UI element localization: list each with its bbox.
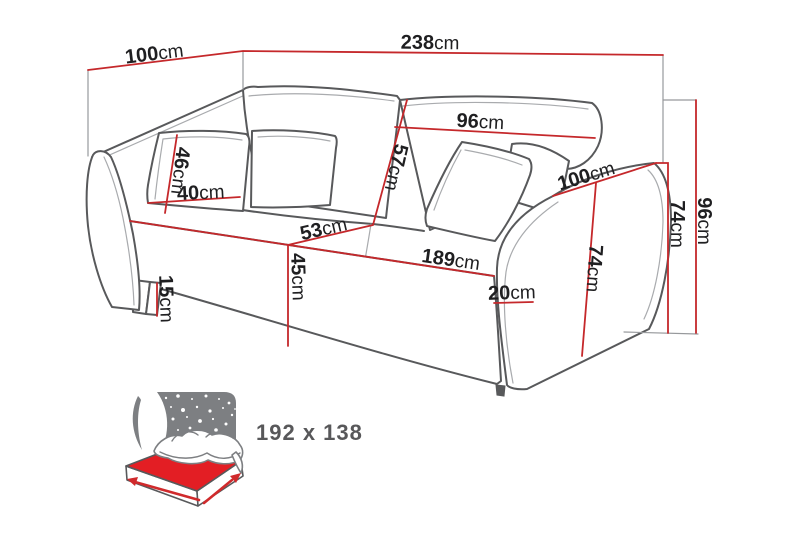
label-back-cushion-width-value: 96 — [456, 110, 479, 133]
label-armrest-front-width: 20cm — [488, 281, 536, 305]
label-total-width: 238cm — [401, 32, 460, 55]
diagram-canvas: 100cm 238cm 96cm 57cm 46cm 40cm 53cm 189… — [0, 0, 800, 533]
pillow-back-left — [251, 130, 337, 207]
label-total-height-value: 96 — [693, 197, 715, 219]
label-total-height-unit: cm — [693, 219, 714, 244]
front-leg-right — [496, 385, 505, 396]
label-armrest-height-side-value: 74 — [666, 200, 688, 223]
label-depth-top-unit: cm — [157, 41, 185, 65]
label-armrest-front-width-unit: cm — [510, 282, 536, 304]
label-depth-top: 100cm — [124, 40, 185, 69]
label-pillow-width: 40cm — [176, 181, 225, 205]
label-leg-height-unit: cm — [155, 297, 177, 323]
label-seat-height-value: 45 — [286, 253, 309, 276]
sleeping-area-size-label: 192 x 138 — [256, 420, 363, 445]
label-armrest-height-front: 74cm — [581, 244, 606, 293]
label-seat-height-unit: cm — [287, 275, 309, 301]
starry-wall-sliver — [133, 396, 142, 450]
label-armrest-height-side-unit: cm — [666, 222, 687, 247]
label-leg-height-value: 15 — [154, 275, 177, 298]
sleeping-area-icon — [126, 392, 243, 506]
label-total-height: 96cm — [693, 197, 715, 245]
label-back-cushion-width-unit: cm — [478, 112, 504, 134]
label-seat-width-value: 189 — [420, 245, 456, 271]
label-total-width-unit: cm — [434, 33, 460, 54]
sofa-base — [130, 221, 501, 384]
label-armrest-front-width-value: 20 — [488, 282, 511, 305]
label-total-width-value: 238 — [401, 32, 435, 54]
label-pillow-height-value: 46 — [169, 146, 194, 171]
label-seat-height: 45cm — [286, 253, 310, 301]
furniture-dimension-diagram: 100cm 238cm 96cm 57cm 46cm 40cm 53cm 189… — [0, 0, 800, 533]
label-seat-width-unit: cm — [453, 251, 481, 275]
label-pillow-width-value: 40 — [176, 182, 199, 205]
label-armrest-height-side: 74cm — [666, 200, 688, 248]
label-armrest-height-front-unit: cm — [581, 266, 604, 293]
label-armrest-height-front-value: 74 — [583, 244, 607, 269]
label-depth-top-value: 100 — [124, 43, 160, 69]
label-seat-depth-unit: cm — [320, 214, 349, 240]
label-leg-height: 15cm — [154, 275, 178, 323]
armrest-left — [87, 151, 140, 310]
label-pillow-width-unit: cm — [199, 182, 225, 204]
label-back-cushion-width: 96cm — [456, 110, 505, 134]
